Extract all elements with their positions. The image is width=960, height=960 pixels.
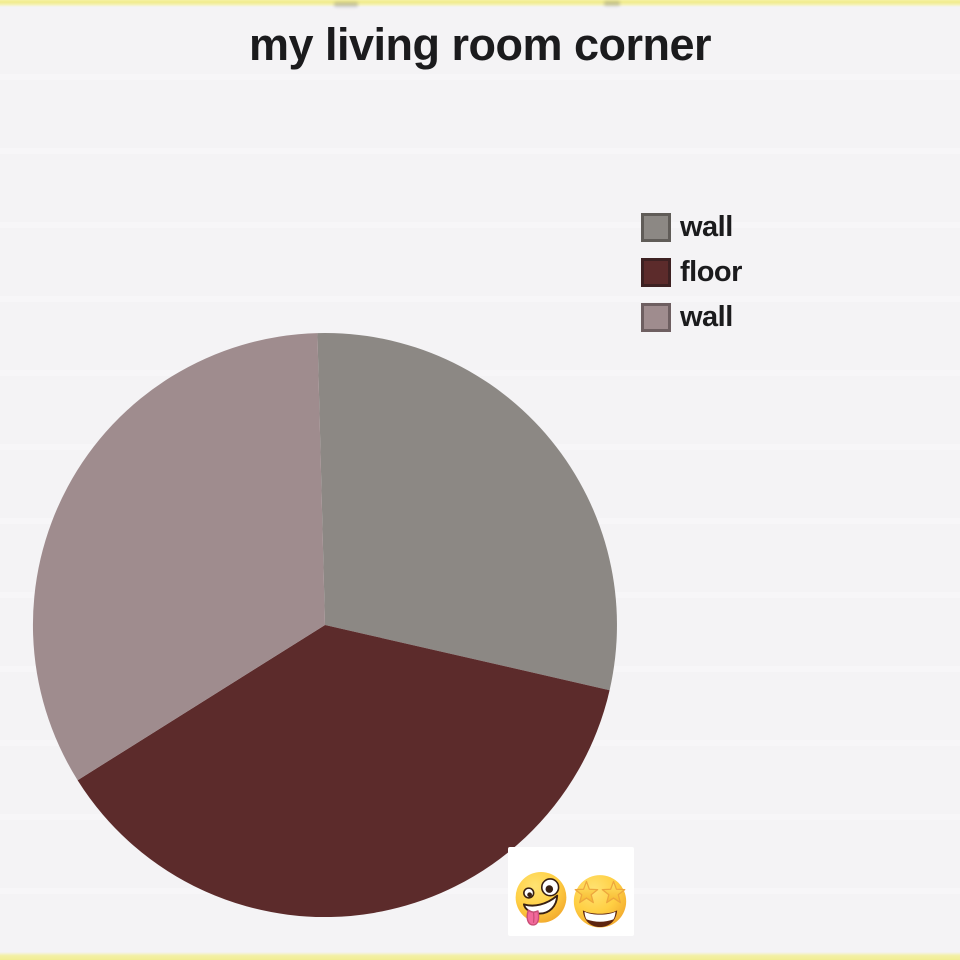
emoji-big-pupil — [546, 885, 554, 893]
bottom-yellow-border — [0, 952, 960, 960]
pie-chart — [0, 0, 960, 960]
star-struck-emoji — [571, 867, 629, 932]
emoji-watermark-box — [508, 847, 634, 936]
emoji-face — [516, 872, 567, 923]
emoji-tongue — [527, 910, 538, 925]
zany-face-emoji — [513, 868, 569, 932]
emoji-small-pupil — [527, 892, 532, 897]
